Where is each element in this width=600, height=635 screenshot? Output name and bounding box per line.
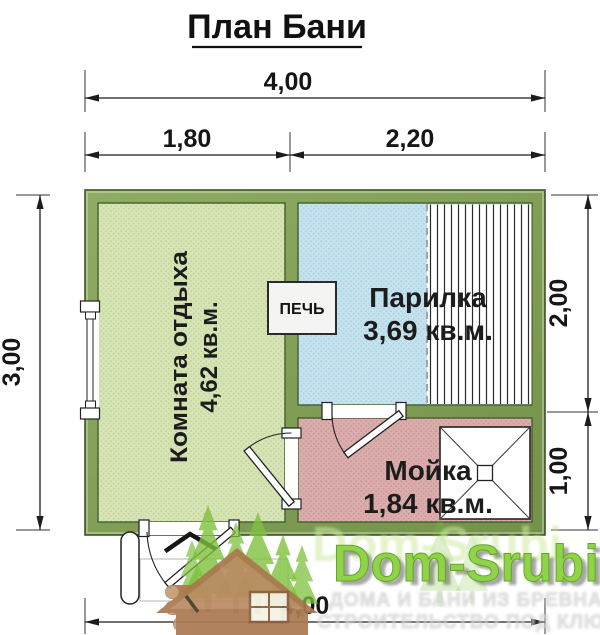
floor-plan-canvas: План Бани 4,00 1,80 2,20 3,00 2,00 1,00 … (0, 0, 600, 635)
rest-room-name: Комната отдыха (166, 250, 193, 463)
dim-wash-depth: 1,00 (545, 447, 573, 496)
steam-room-area: 3,69 кв.м. (363, 315, 493, 346)
stove-label: ПЕЧЬ (280, 301, 325, 318)
stove: ПЕЧЬ (268, 282, 336, 334)
dim-right-width: 2,20 (386, 125, 435, 153)
brand-text: Dom-Srubi (333, 535, 599, 593)
plan-title-text: План Бани (187, 8, 367, 46)
wash-room-name: Мойка (384, 455, 472, 486)
wash-room-area: 1,84 кв.м. (363, 488, 493, 519)
watermark-tagline-line1: ДОМА И БАНИ ИЗ БРЕВНА (329, 590, 600, 611)
window-left-wall (81, 301, 100, 419)
steam-room-name: Парилка (369, 282, 487, 313)
dim-overall-width-top: 4,00 (264, 68, 313, 96)
porch-rail (121, 532, 139, 604)
dim-steam-depth: 2,00 (545, 279, 573, 328)
dim-overall-depth: 3,00 (0, 338, 26, 387)
rest-room-area: 4,62 кв.м. (196, 301, 223, 412)
page-title: План Бани (187, 8, 367, 47)
watermark-tagline-line2: СТРОИТЕЛЬСТВО ПОД КЛЮЧ (317, 612, 600, 633)
dim-rest-width: 1,80 (163, 125, 212, 153)
floor-plan-page: План Бани 4,00 1,80 2,20 3,00 2,00 1,00 … (0, 0, 600, 635)
